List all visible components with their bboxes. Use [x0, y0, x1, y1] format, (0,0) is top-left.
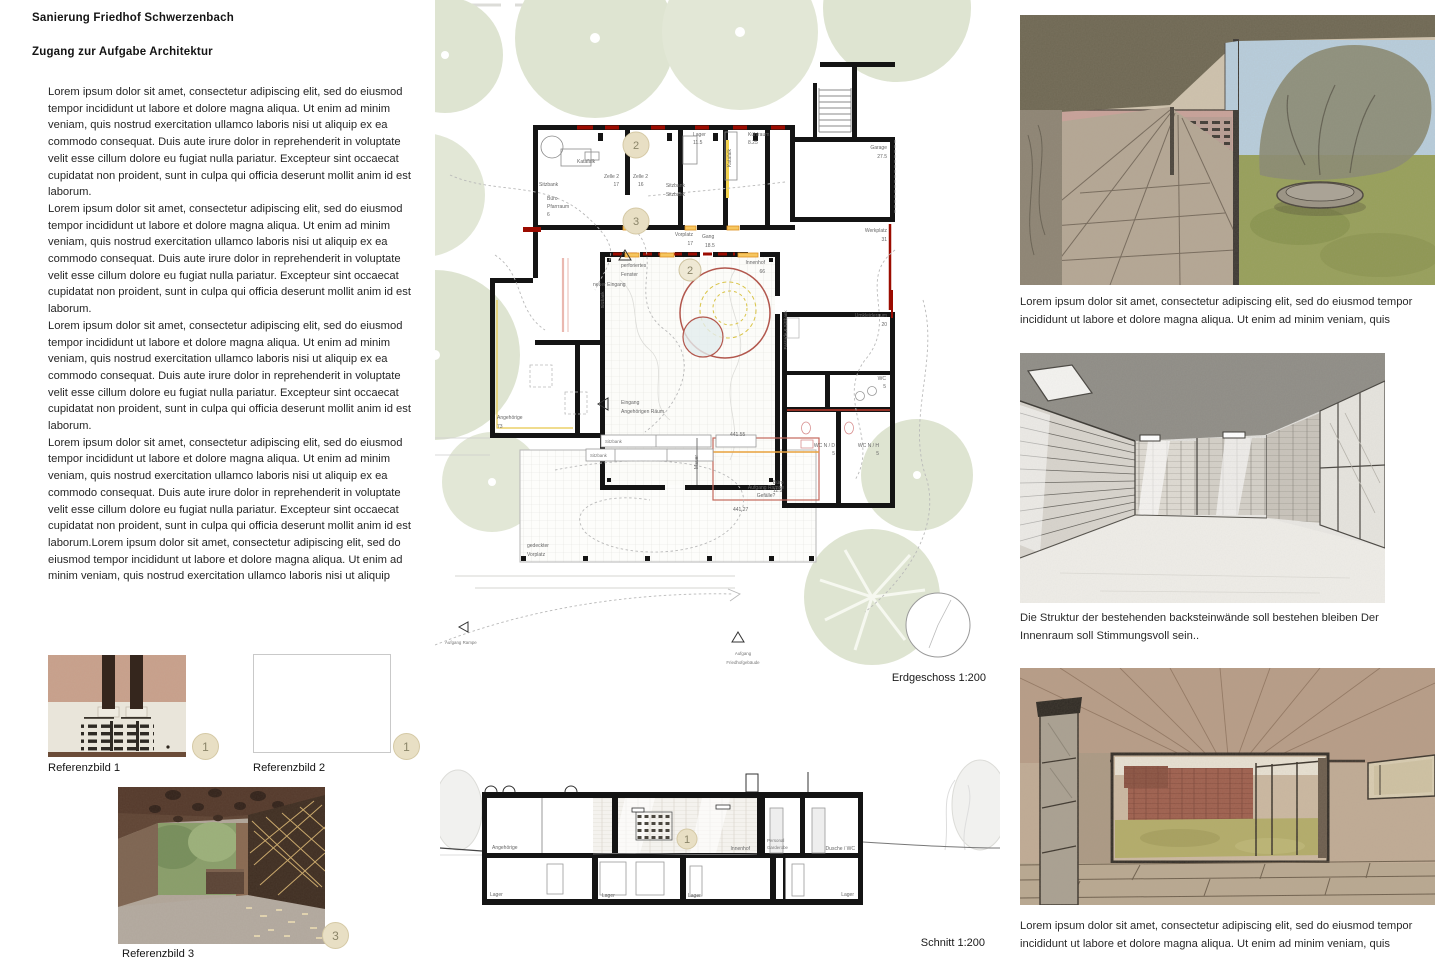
- floor-plan: 2 3 2 Sitzbank Katafalk Zelle 2 17 Zelle…: [435, 0, 1005, 700]
- reference-image-3: [118, 787, 325, 944]
- intro-text: Lorem ipsum dolor sit amet, consectetur …: [48, 84, 420, 585]
- svg-text:73: 73: [497, 424, 503, 430]
- svg-text:20: 20: [881, 322, 887, 328]
- svg-text:Sitzbank: Sitzbank: [666, 183, 686, 189]
- svg-text:Sitzbank: Sitzbank: [539, 182, 559, 188]
- svg-text:Lager: Lager: [841, 892, 854, 898]
- svg-text:Aufgang: Aufgang: [735, 651, 752, 656]
- svg-text:WC N / D: WC N / D: [814, 443, 835, 449]
- svg-text:Aufgang Rampe: Aufgang Rampe: [445, 640, 477, 645]
- stair: [819, 88, 851, 132]
- svg-text:441.27: 441.27: [733, 507, 749, 513]
- svg-text:gedeckter: gedeckter: [527, 543, 549, 549]
- svg-text:Katafalk: Katafalk: [727, 148, 733, 167]
- section-drawing: 1 Angehörige Innenhof Personal Garderobe…: [440, 750, 1000, 960]
- svg-text:Vorplatz: Vorplatz: [527, 552, 546, 558]
- svg-text:31: 31: [881, 237, 887, 243]
- section-structure: [440, 772, 1000, 905]
- svg-text:Fenster: Fenster: [621, 272, 638, 278]
- paragraph: Lorem ipsum dolor sit amet, consectetur …: [48, 435, 420, 585]
- reference-caption: Referenzbild 3: [122, 948, 194, 960]
- svg-text:Büro: Büro: [547, 196, 558, 202]
- svg-text:Lager: Lager: [693, 132, 706, 138]
- svg-text:Fassade & Sitzbank: Fassade & Sitzbank: [783, 310, 788, 350]
- svg-text:WC: WC: [878, 376, 887, 382]
- svg-text:Angehörige: Angehörige: [492, 845, 518, 851]
- svg-text:Eingang: Eingang: [621, 400, 640, 406]
- svg-text:Sitzbank: Sitzbank: [600, 291, 605, 309]
- reference-caption: Referenzbild 1: [48, 762, 120, 774]
- reference-caption: Referenzbild 2: [253, 762, 325, 774]
- svg-text:Personal: Personal: [767, 838, 784, 843]
- svg-text:8.25: 8.25: [748, 140, 758, 146]
- plan-badge-3: 3: [633, 216, 639, 228]
- svg-text:Sitzbank: Sitzbank: [605, 439, 623, 444]
- svg-text:Angehörigen Räum.: Angehörigen Räum.: [621, 409, 665, 415]
- svg-text:17: 17: [613, 182, 619, 188]
- reference-image-1: [48, 655, 186, 757]
- svg-text:27.5: 27.5: [877, 154, 887, 160]
- plan-badge-2: 2: [633, 140, 639, 152]
- svg-text:Zelle 2: Zelle 2: [633, 174, 648, 180]
- page-subtitle: Zugang zur Aufgabe Architektur: [32, 46, 213, 58]
- svg-text:11.5: 11.5: [773, 488, 783, 494]
- svg-text:Garderobe: Garderobe: [767, 845, 789, 850]
- svg-text:441.55: 441.55: [730, 432, 746, 438]
- svg-text:Friedhofgebäude: Friedhofgebäude: [726, 660, 760, 665]
- paragraph: Lorem ipsum dolor sit amet, consectetur …: [48, 201, 420, 318]
- svg-text:Zelle 2: Zelle 2: [604, 174, 619, 180]
- svg-text:5: 5: [883, 384, 886, 390]
- svg-text:66: 66: [759, 269, 765, 275]
- paragraph: Lorem ipsum dolor sit amet, consectetur …: [48, 318, 420, 435]
- svg-text:6: 6: [547, 212, 550, 218]
- page-title: Sanierung Friedhof Schwerzenbach: [32, 12, 234, 24]
- reference-badge: 3: [322, 922, 349, 949]
- svg-text:1: 1: [684, 834, 690, 846]
- svg-text:5: 5: [876, 451, 879, 457]
- svg-text:18.5: 18.5: [705, 243, 715, 249]
- section-caption: Schnitt 1:200: [921, 937, 985, 949]
- svg-text:perforiertes: perforiertes: [621, 263, 647, 269]
- svg-text:Lager: Lager: [490, 892, 503, 898]
- svg-text:Innenhof: Innenhof: [731, 846, 751, 852]
- svg-text:Vorplatz: Vorplatz: [675, 232, 694, 238]
- svg-text:Innenhof: Innenhof: [746, 260, 766, 266]
- svg-text:neuer Eingang: neuer Eingang: [593, 282, 626, 288]
- svg-text:11.5: 11.5: [693, 140, 703, 146]
- sketch-brick-room: [1020, 353, 1385, 603]
- reference-image-2: [253, 654, 391, 753]
- svg-text:Werkplatz: Werkplatz: [865, 228, 888, 234]
- plan-caption: Erdgeschoss 1:200: [892, 672, 986, 684]
- svg-text:5: 5: [832, 451, 835, 457]
- presentation-board: Sanierung Friedhof Schwerzenbach Zugang …: [0, 0, 1440, 960]
- svg-text:Sitzbank: Sitzbank: [590, 453, 608, 458]
- svg-text:Büro: Büro: [773, 480, 784, 486]
- svg-text:Lager: Lager: [602, 893, 615, 899]
- sketch-courtyard: [1020, 15, 1435, 285]
- plan-badge-court: 2: [687, 265, 693, 277]
- sketch-caption-bottom: Lorem ipsum dolor sit amet, consectetur …: [1020, 918, 1432, 953]
- svg-text:Gang: Gang: [702, 234, 714, 240]
- svg-text:Pfarrraum: Pfarrraum: [547, 204, 569, 210]
- sketch-interior-color: [1020, 668, 1435, 905]
- svg-text:Kühlraum: Kühlraum: [748, 132, 769, 138]
- svg-text:WC N / H: WC N / H: [858, 443, 879, 449]
- paragraph: Lorem ipsum dolor sit amet, consectetur …: [48, 84, 420, 201]
- svg-text:Mauer: Mauer: [694, 455, 700, 470]
- svg-text:Garage: Garage: [870, 145, 887, 151]
- svg-text:Katafalk: Katafalk: [577, 159, 596, 165]
- reference-badge: 1: [192, 733, 219, 760]
- sketch-caption-mid: Die Struktur der bestehenden backsteinwä…: [1020, 610, 1432, 645]
- sketch-caption-top: Lorem ipsum dolor sit amet, consectetur …: [1020, 294, 1432, 329]
- svg-text:16: 16: [638, 182, 644, 188]
- svg-text:Umkleideraum: Umkleideraum: [855, 313, 887, 319]
- svg-text:Dusche / WC: Dusche / WC: [826, 846, 856, 852]
- svg-text:Angehörige: Angehörige: [497, 415, 523, 421]
- reference-badge: 1: [393, 733, 420, 760]
- svg-text:Sitzbank: Sitzbank: [666, 192, 686, 198]
- svg-text:17: 17: [687, 241, 693, 247]
- section-badge: 1: [677, 829, 697, 849]
- svg-text:Lager: Lager: [688, 893, 701, 899]
